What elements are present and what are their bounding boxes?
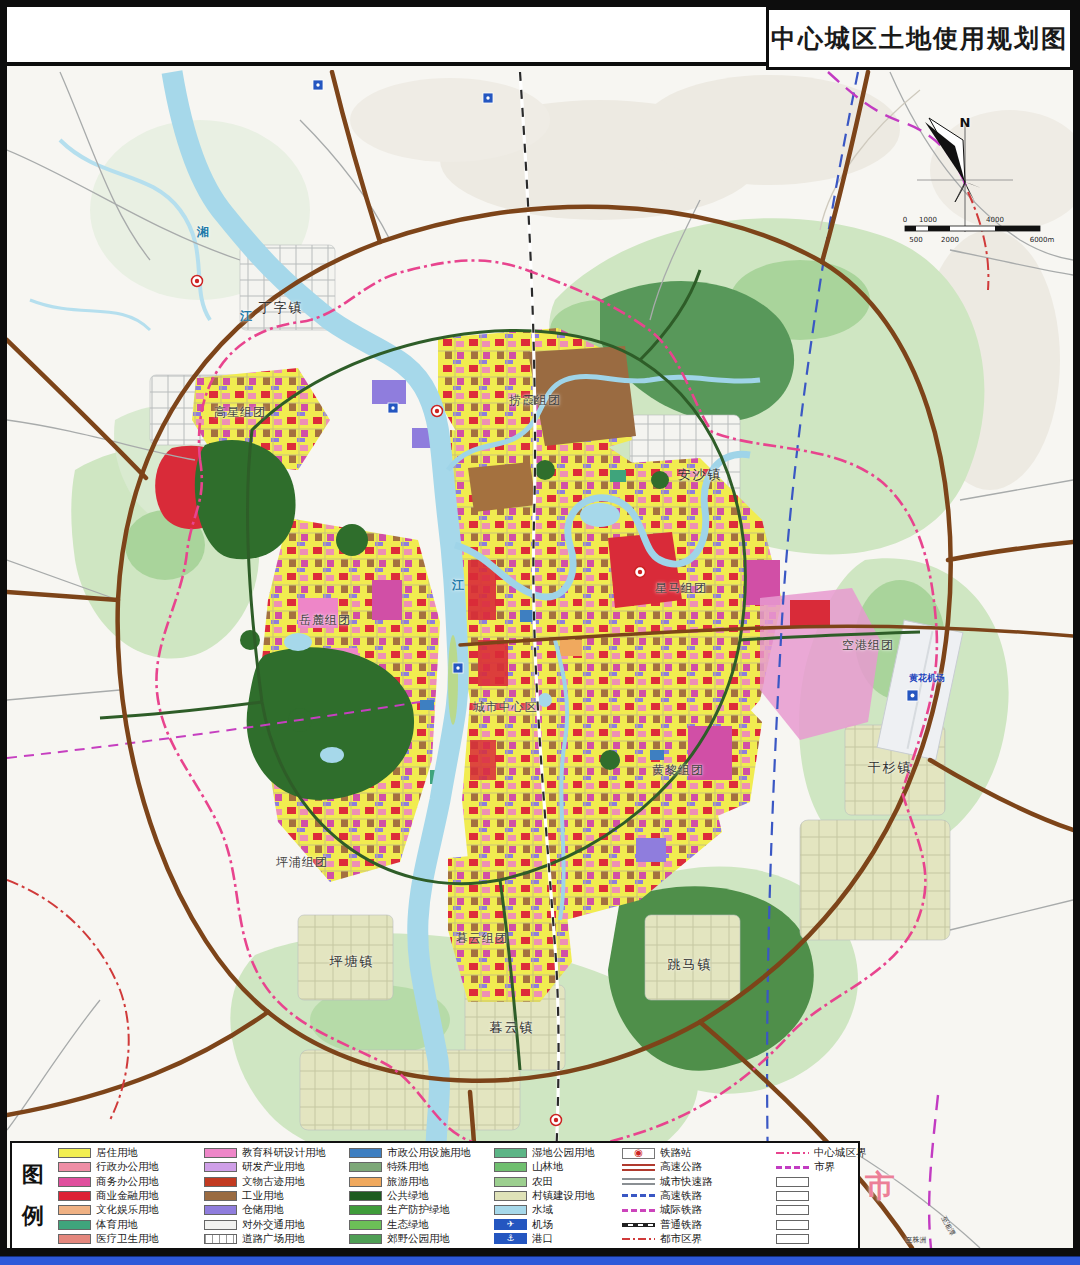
legend-item (776, 1219, 867, 1231)
legend-label: 文化娱乐用地 (96, 1203, 159, 1217)
legend-label: 山林地 (532, 1160, 564, 1174)
scale-bar (905, 226, 1040, 231)
legend-item: 工业用地 (204, 1190, 326, 1202)
planning-map-page: 丁字镇高星组团捞霞组团安沙镇岳麓组团星马组团城市中心区黄黎组团空港组团黄花机场干… (0, 0, 1080, 1265)
legend-label: 商务办公用地 (96, 1175, 159, 1189)
legend-item: 仓储用地 (204, 1204, 326, 1216)
legend-item: ◉铁路站 (622, 1147, 713, 1159)
legend-swatch-fill (204, 1177, 237, 1187)
legend-item: 高速公路 (622, 1161, 713, 1173)
legend-label: 城市快速路 (660, 1175, 713, 1189)
legend-item (776, 1190, 867, 1202)
legend-item: 对外交通用地 (204, 1219, 326, 1231)
legend-item: 道路广场用地 (204, 1233, 326, 1245)
legend-label: 郊野公园用地 (387, 1232, 450, 1246)
legend-label: 水域 (532, 1203, 553, 1217)
legend-item: 山林地 (494, 1161, 595, 1173)
legend-item: 医疗卫生用地 (58, 1233, 159, 1245)
legend-swatch-empty (776, 1191, 809, 1201)
legend-swatch-fill (494, 1177, 527, 1187)
legend-swatch-dash (622, 1194, 655, 1197)
map-area (7, 70, 1073, 1248)
legend-label: 生态绿地 (387, 1218, 429, 1232)
legend-swatch-dash (622, 1209, 655, 1212)
legend-swatch-fill (204, 1162, 237, 1172)
legend-swatch-line-double (622, 1178, 655, 1185)
legend-item: ✈机场 (494, 1219, 595, 1231)
legend-label: 生产防护绿地 (387, 1203, 450, 1217)
legend-label: 道路广场用地 (242, 1232, 305, 1246)
legend-swatch-empty (776, 1205, 809, 1215)
legend-label: 公共绿地 (387, 1189, 429, 1203)
legend-item: 高速铁路 (622, 1190, 713, 1202)
legend-label: 教育科研设计用地 (242, 1146, 326, 1160)
legend-swatch-fill (494, 1191, 527, 1201)
legend-item: 中心城区界 (776, 1147, 867, 1159)
legend-item (776, 1204, 867, 1216)
legend-item: 市界 (776, 1161, 867, 1173)
legend-label: 体育用地 (96, 1218, 138, 1232)
legend-swatch-fill (58, 1148, 91, 1158)
frame-right (1073, 0, 1080, 1256)
legend-swatch-dashdot (622, 1238, 655, 1241)
bottom-blue-strip (0, 1256, 1080, 1265)
legend-swatch-rail (622, 1223, 655, 1227)
legend-column: 市政公用设施用地特殊用地旅游用地公共绿地生产防护绿地生态绿地郊野公园用地 (349, 1147, 471, 1245)
legend-swatch-icon-port: ⚓ (494, 1233, 527, 1244)
legend-label: 都市区界 (660, 1232, 702, 1246)
legend-label: 高速公路 (660, 1160, 702, 1174)
legend-item: 体育用地 (58, 1219, 159, 1231)
map-canvas (7, 70, 1073, 1248)
legend-label: 中心城区界 (814, 1146, 867, 1160)
legend-swatch-fill (349, 1162, 382, 1172)
legend-label: 特殊用地 (387, 1160, 429, 1174)
legend-swatch-fill (349, 1220, 382, 1230)
legend-swatch-fill (58, 1234, 91, 1244)
legend-swatch-fill (494, 1148, 527, 1158)
legend-swatch-fill (349, 1234, 382, 1244)
legend-item: 普通铁路 (622, 1219, 713, 1231)
legend-label: 研发产业用地 (242, 1160, 305, 1174)
legend-swatch-fill (204, 1191, 237, 1201)
legend-label: 城际铁路 (660, 1203, 702, 1217)
legend-label: 湿地公园用地 (532, 1146, 595, 1160)
legend-label: 文物古迹用地 (242, 1175, 305, 1189)
legend-label: 对外交通用地 (242, 1218, 305, 1232)
legend-item: 城际铁路 (622, 1204, 713, 1216)
legend-swatch-fill (58, 1177, 91, 1187)
legend-item: 研发产业用地 (204, 1161, 326, 1173)
legend-swatch-fill (494, 1205, 527, 1215)
legend-swatch-fill (349, 1148, 382, 1158)
legend-label: 商业金融用地 (96, 1189, 159, 1203)
legend-column: 湿地公园用地山林地农田村镇建设用地水域✈机场⚓港口 (494, 1147, 595, 1245)
legend-swatch-fill (58, 1162, 91, 1172)
legend-label: 普通铁路 (660, 1218, 702, 1232)
legend-label: 医疗卫生用地 (96, 1232, 159, 1246)
legend-label: 高速铁路 (660, 1189, 702, 1203)
legend-swatch-fill (494, 1162, 527, 1172)
legend-swatch-fill (349, 1205, 382, 1215)
legend-item: 生态绿地 (349, 1219, 471, 1231)
legend-label: 行政办公用地 (96, 1160, 159, 1174)
legend-swatch-empty (776, 1220, 809, 1230)
legend-swatch-line-double (622, 1164, 655, 1171)
legend-swatch-hatch (204, 1234, 237, 1244)
legend-label: 铁路站 (660, 1146, 692, 1160)
legend-item: 居住用地 (58, 1147, 159, 1159)
legend-label: 市政公用设施用地 (387, 1146, 471, 1160)
legend-column: 居住用地行政办公用地商务办公用地商业金融用地文化娱乐用地体育用地医疗卫生用地 (58, 1147, 159, 1245)
legend-item: 文化娱乐用地 (58, 1204, 159, 1216)
legend-swatch-fill (58, 1191, 91, 1201)
legend-swatch-empty (776, 1234, 809, 1244)
map-title-box: 中心城区土地使用规划图 (766, 7, 1073, 70)
legend-item: 旅游用地 (349, 1176, 471, 1188)
legend-label: 村镇建设用地 (532, 1189, 595, 1203)
legend-item: 商业金融用地 (58, 1190, 159, 1202)
legend-item: 教育科研设计用地 (204, 1147, 326, 1159)
legend-column: 中心城区界市界 (776, 1147, 867, 1245)
legend-swatch-fill (349, 1191, 382, 1201)
legend-item: 湿地公园用地 (494, 1147, 595, 1159)
legend-panel: 图例 居住用地行政办公用地商务办公用地商业金融用地文化娱乐用地体育用地医疗卫生用… (10, 1141, 860, 1251)
legend-label: 农田 (532, 1175, 553, 1189)
legend-item: 水域 (494, 1204, 595, 1216)
legend-item: 公共绿地 (349, 1190, 471, 1202)
legend-swatch-fill (58, 1205, 91, 1215)
legend-item: 城市快速路 (622, 1176, 713, 1188)
legend-swatch-empty (776, 1177, 809, 1187)
legend-item: 行政办公用地 (58, 1161, 159, 1173)
legend-item: 都市区界 (622, 1233, 713, 1245)
legend-column: ◉铁路站高速公路城市快速路高速铁路城际铁路普通铁路都市区界 (622, 1147, 713, 1245)
legend-heading: 图例 (22, 1155, 52, 1236)
legend-column: 教育科研设计用地研发产业用地文物古迹用地工业用地仓储用地对外交通用地道路广场用地 (204, 1147, 326, 1245)
legend-item: 农田 (494, 1176, 595, 1188)
legend-label: 港口 (532, 1232, 553, 1246)
legend-swatch-fill (58, 1220, 91, 1230)
legend-item (776, 1176, 867, 1188)
legend-label: 居住用地 (96, 1146, 138, 1160)
legend-swatch-fill (204, 1205, 237, 1215)
frame-bottom (0, 1248, 1080, 1256)
legend-swatch-fill (204, 1220, 237, 1230)
legend-item: 文物古迹用地 (204, 1176, 326, 1188)
legend-swatch-fill (204, 1148, 237, 1158)
legend-swatch-icon-station: ◉ (622, 1148, 655, 1159)
legend-label: 市界 (814, 1160, 835, 1174)
legend-swatch-fill (349, 1177, 382, 1187)
frame-top (0, 0, 1080, 7)
legend-item: 生产防护绿地 (349, 1204, 471, 1216)
legend-item: ⚓港口 (494, 1233, 595, 1245)
legend-swatch-dashdot (776, 1152, 809, 1155)
legend-swatch-icon-airport: ✈ (494, 1219, 527, 1230)
legend-swatch-dash (776, 1166, 809, 1169)
legend-label: 仓储用地 (242, 1203, 284, 1217)
frame-left (0, 0, 7, 1256)
legend-item (776, 1233, 867, 1245)
legend-item: 特殊用地 (349, 1161, 471, 1173)
legend-label: 机场 (532, 1218, 553, 1232)
page-title: 中心城区土地使用规划图 (771, 22, 1068, 55)
legend-item: 郊野公园用地 (349, 1233, 471, 1245)
legend-label: 旅游用地 (387, 1175, 429, 1189)
legend-label: 工业用地 (242, 1189, 284, 1203)
legend-item: 商务办公用地 (58, 1176, 159, 1188)
legend-item: 村镇建设用地 (494, 1190, 595, 1202)
legend-item: 市政公用设施用地 (349, 1147, 471, 1159)
